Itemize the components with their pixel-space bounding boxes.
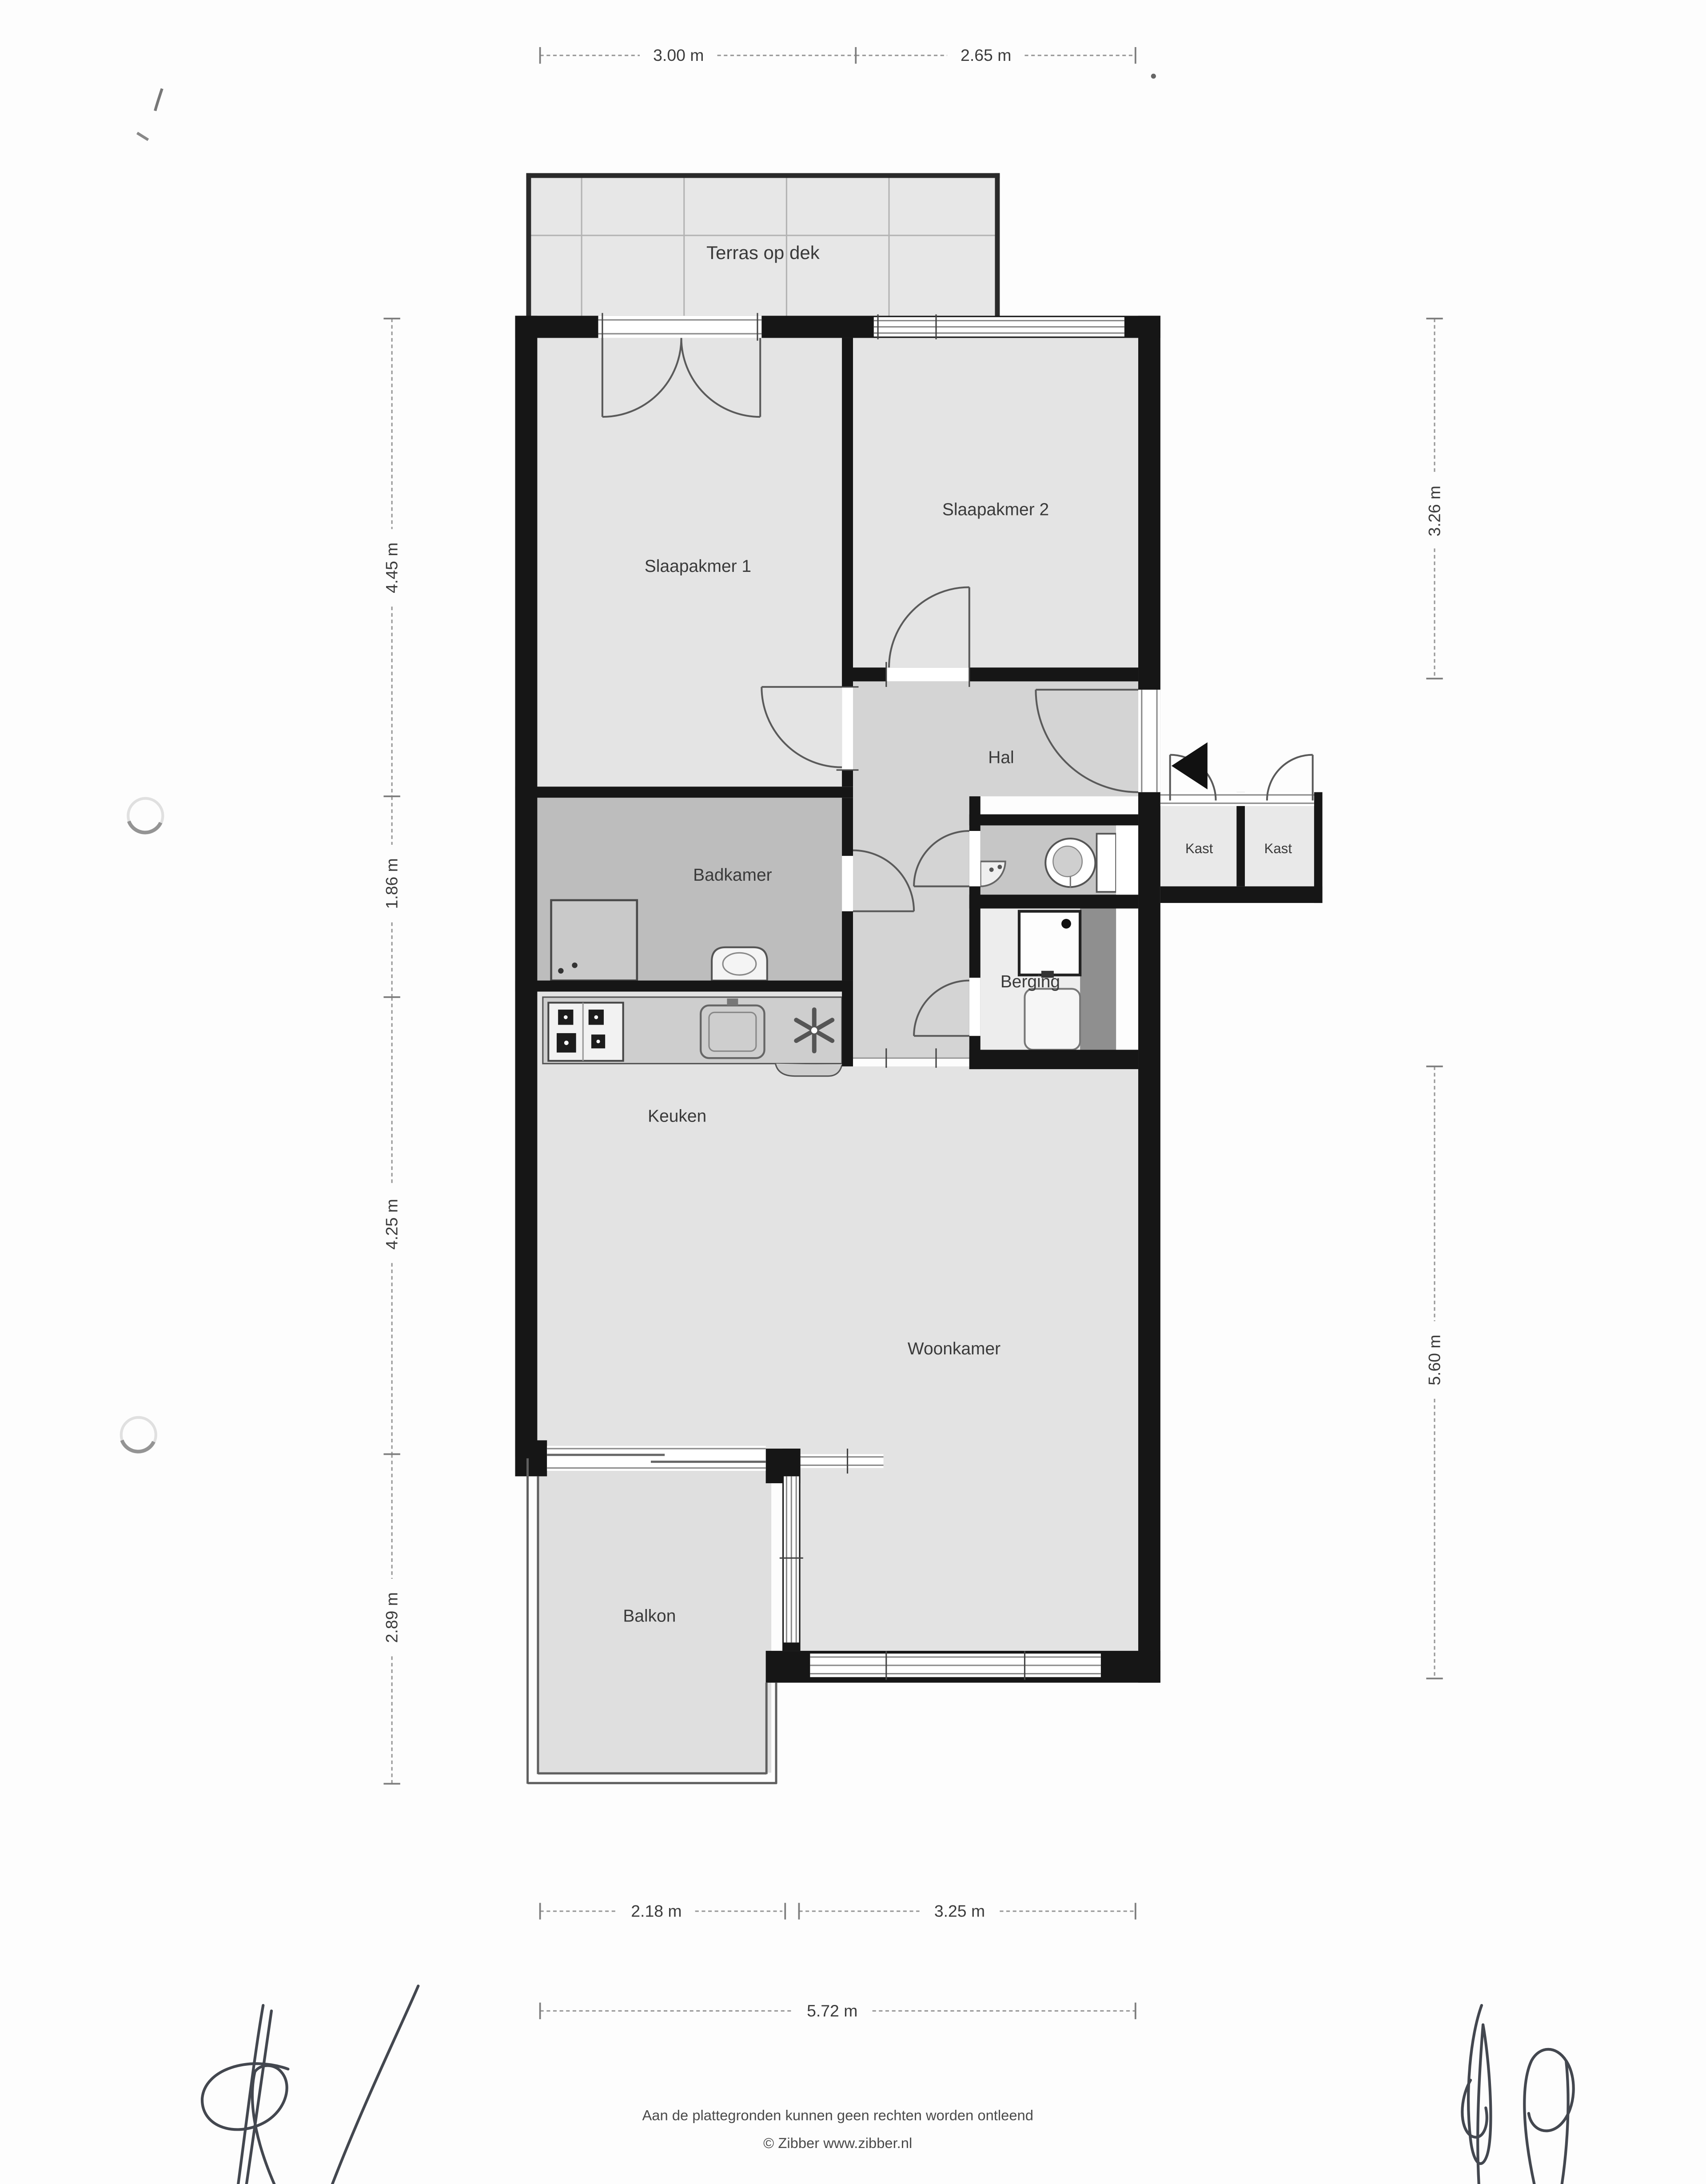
- storage-label: Berging: [1000, 972, 1060, 991]
- wall-storage-south: [969, 1050, 1138, 1069]
- toilet-service-gap: [1116, 826, 1138, 895]
- wall-exterior-left: [515, 316, 538, 1457]
- wall-closet-south: [1160, 886, 1323, 903]
- dim-right1: 3.26 m: [1425, 486, 1443, 536]
- washing-machine-icon: [1019, 911, 1080, 978]
- bathroom-sink-icon: [712, 947, 767, 981]
- closet2-label: Kast: [1264, 841, 1292, 856]
- wall-block-balcony-left: [515, 1440, 547, 1476]
- livingroom-south-window: [810, 1651, 1101, 1680]
- wall-toilet-south: [969, 894, 1138, 908]
- closet1-label: Kast: [1185, 841, 1213, 856]
- wall-bathroom-south: [515, 981, 853, 992]
- shower-tray-icon: [551, 900, 637, 981]
- bedroom2-label: Slaapakmer 2: [942, 500, 1049, 519]
- terrace: Terras op dek: [526, 173, 1000, 319]
- dim-left3: 4.25 m: [383, 1199, 401, 1250]
- wall-toilet-north: [969, 815, 1138, 826]
- dim-bottom1: 2.18 m: [631, 1901, 682, 1920]
- toilet-icon: [1045, 834, 1116, 892]
- stove-icon: [548, 1002, 623, 1061]
- wall-closet-divider: [1236, 792, 1245, 886]
- dim-left1: 4.45 m: [383, 543, 401, 593]
- bedroom1-label: Slaapakmer 1: [645, 557, 751, 576]
- wall-closet-east: [1314, 792, 1323, 903]
- appliance-icon: [1024, 989, 1080, 1050]
- footer-copyright: © Zibber www.zibber.nl: [763, 2135, 912, 2151]
- dim-bottom-total: 5.72 m: [807, 2001, 857, 2020]
- kitchen-counter: [543, 997, 842, 1076]
- dim-top1: 3.00 m: [653, 46, 704, 64]
- terrace-wall-left: [526, 173, 531, 319]
- counter-curve: [775, 1064, 842, 1076]
- dim-right2: 5.60 m: [1425, 1334, 1443, 1385]
- bedroom2-window: [874, 314, 1124, 339]
- hall-label: Hal: [988, 748, 1014, 767]
- pen-dot: [1151, 74, 1156, 79]
- balcony-label: Balkon: [623, 1607, 676, 1626]
- footer-disclaimer: Aan de plattegronden kunnen geen rechten…: [642, 2107, 1033, 2124]
- storage-shaft: [1080, 909, 1116, 1050]
- dim-top2: 2.65 m: [961, 46, 1011, 64]
- scanned-floorplan-page: Terras op dek: [0, 0, 1706, 2184]
- dim-bottom2: 3.25 m: [934, 1901, 985, 1920]
- bathroom-label: Badkamer: [693, 866, 772, 885]
- wall-kitchen-stub: [842, 981, 853, 1066]
- wall-exterior-right: [1138, 316, 1160, 1683]
- terrace-label: Terras op dek: [706, 242, 820, 263]
- dim-left4: 2.89 m: [383, 1592, 401, 1643]
- livingroom-label: Woonkamer: [908, 1339, 1000, 1358]
- dim-left2: 1.86 m: [383, 858, 401, 909]
- kitchen-label: Keuken: [648, 1107, 706, 1126]
- balcony-sliding-door: [547, 1446, 765, 1471]
- wall-bathroom-north: [515, 787, 853, 798]
- terrace-wall-right: [995, 173, 1000, 319]
- floorplan-canvas: Terras op dek: [0, 0, 1706, 2184]
- terrace-wall-top: [526, 173, 1000, 178]
